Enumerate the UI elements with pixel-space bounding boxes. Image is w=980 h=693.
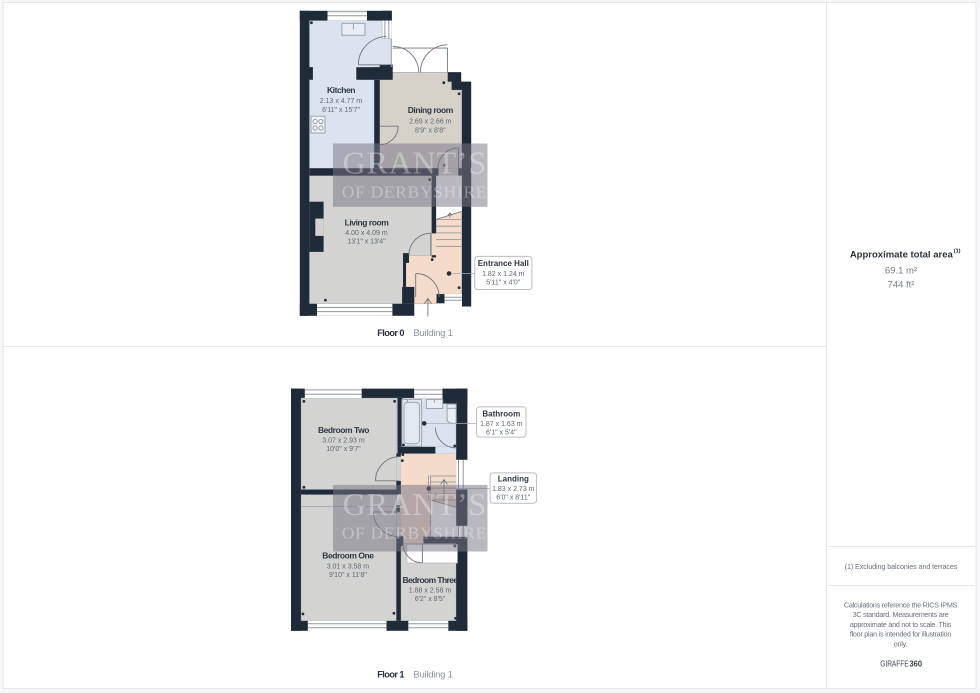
svg-text:only.: only. (894, 639, 908, 648)
svg-text:1.83 x 2.73 m: 1.83 x 2.73 m (492, 486, 535, 493)
svg-text:3.07 x 2.93 m: 3.07 x 2.93 m (322, 438, 365, 445)
svg-text:4.00 x 4.09 m: 4.00 x 4.09 m (345, 230, 388, 237)
svg-text:6'11" x 15'7": 6'11" x 15'7" (322, 107, 360, 114)
svg-text:Bedroom Two: Bedroom Two (318, 425, 369, 435)
svg-text:approximate and not to scale.: approximate and not to scale. This (850, 620, 952, 629)
svg-text:1.82 x 1.24 m: 1.82 x 1.24 m (482, 271, 525, 278)
svg-text:360: 360 (909, 659, 922, 668)
svg-text:OF DERBYSHIRE: OF DERBYSHIRE (342, 524, 487, 543)
svg-text:Dining room: Dining room (408, 105, 454, 115)
svg-text:9'10" x 11'8": 9'10" x 11'8" (329, 572, 367, 579)
svg-text:Bathroom: Bathroom (482, 410, 520, 419)
svg-text:2.69 x 2.66 m: 2.69 x 2.66 m (409, 119, 452, 126)
svg-text:GRANT’S: GRANT’S (343, 486, 487, 522)
svg-text:3.01 x 3.58 m: 3.01 x 3.58 m (327, 564, 370, 571)
svg-text:8'9" x 8'8": 8'9" x 8'8" (415, 128, 446, 135)
svg-text:(1): (1) (954, 249, 961, 255)
svg-text:Calculations reference the RIC: Calculations reference the RICS IPMS (844, 601, 958, 610)
svg-text:6'2" x 8'5": 6'2" x 8'5" (415, 596, 446, 603)
svg-text:5'11" x 4'0": 5'11" x 4'0" (486, 280, 520, 287)
svg-text:Floor 1: Floor 1 (377, 670, 404, 680)
svg-text:6'1" x 5'4": 6'1" x 5'4" (486, 430, 517, 437)
svg-text:6'0" x 8'11": 6'0" x 8'11" (496, 495, 530, 502)
svg-text:2.13 x 4.77 m: 2.13 x 4.77 m (320, 98, 363, 105)
svg-text:Entrance Hall: Entrance Hall (478, 259, 529, 268)
svg-text:13'1" x 13'4": 13'1" x 13'4" (347, 239, 386, 246)
svg-text:69.1 m²: 69.1 m² (885, 266, 917, 277)
svg-text:Bedroom One: Bedroom One (322, 551, 374, 561)
svg-text:Bedroom Three: Bedroom Three (402, 575, 458, 585)
svg-text:floor plan is intended for ill: floor plan is intended for illustration (850, 630, 952, 639)
svg-text:Approximate total area: Approximate total area (850, 250, 954, 261)
svg-text:GRANT’S: GRANT’S (343, 145, 487, 181)
svg-text:GIRAFFE: GIRAFFE (880, 659, 908, 669)
svg-text:1.88 x 2.58 m: 1.88 x 2.58 m (409, 588, 452, 595)
svg-text:Building 1: Building 1 (413, 328, 452, 339)
svg-text:1.87 x 1.63 m: 1.87 x 1.63 m (480, 421, 523, 428)
svg-text:Building 1: Building 1 (413, 670, 452, 681)
svg-text:Landing: Landing (498, 475, 529, 484)
svg-text:3C standard. Measurements are: 3C standard. Measurements are (853, 610, 949, 619)
svg-text:OF DERBYSHIRE: OF DERBYSHIRE (342, 182, 487, 201)
svg-text:744 ft²: 744 ft² (888, 280, 915, 291)
svg-text:Kitchen: Kitchen (327, 85, 355, 95)
svg-text:Living room: Living room (345, 218, 390, 228)
svg-text:10'0" x 9'7": 10'0" x 9'7" (326, 446, 361, 453)
svg-text:Floor 0: Floor 0 (377, 328, 404, 338)
svg-text:(1) Excluding balconies and te: (1) Excluding balconies and terraces (845, 562, 958, 571)
